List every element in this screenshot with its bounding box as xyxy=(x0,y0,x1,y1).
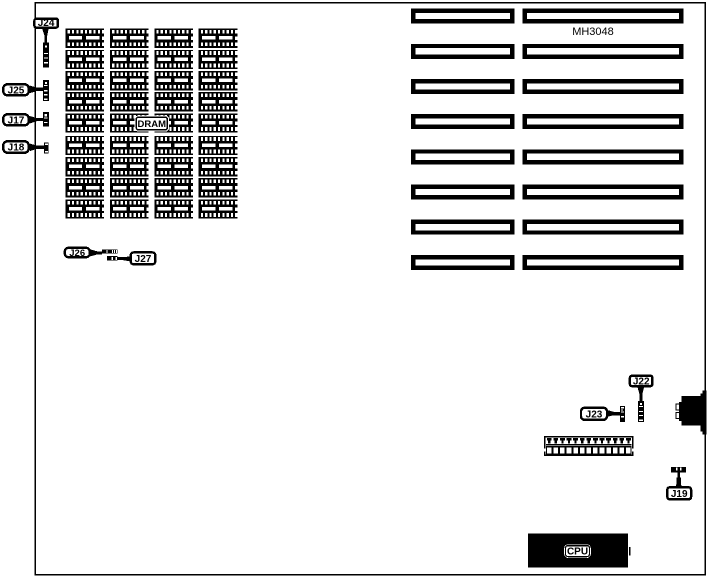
svg-text:J24: J24 xyxy=(38,18,55,29)
svg-text:CPU: CPU xyxy=(567,547,588,558)
svg-text:J25: J25 xyxy=(8,85,25,96)
svg-text:J23: J23 xyxy=(586,409,603,420)
svg-text:J27: J27 xyxy=(135,254,152,265)
svg-text:J26: J26 xyxy=(69,248,85,259)
svg-text:MH3048: MH3048 xyxy=(572,26,614,38)
svg-text:DRAM: DRAM xyxy=(138,119,167,130)
svg-text:J17: J17 xyxy=(8,115,25,126)
svg-text:J22: J22 xyxy=(633,376,650,387)
svg-text:J18: J18 xyxy=(8,143,25,154)
svg-text:J19: J19 xyxy=(671,489,688,500)
